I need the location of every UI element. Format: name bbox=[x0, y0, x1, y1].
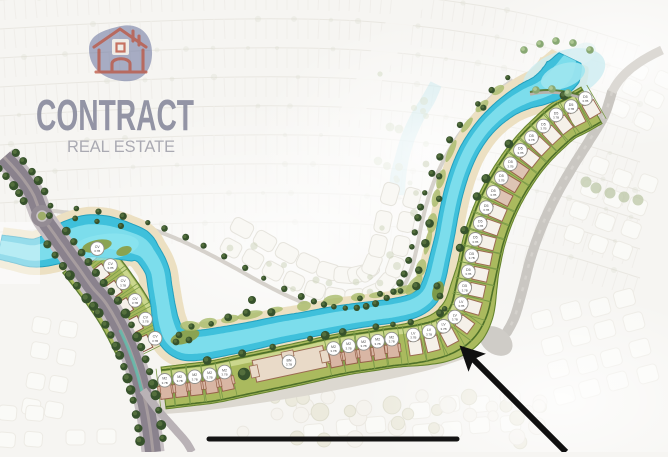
svg-text:3.7B: 3.7B bbox=[452, 318, 458, 322]
svg-text:3.7B: 3.7B bbox=[462, 288, 468, 292]
svg-text:3.7B: 3.7B bbox=[120, 283, 126, 287]
svg-text:3.7B: 3.7B bbox=[142, 320, 148, 324]
svg-text:3.7B: 3.7B bbox=[490, 193, 496, 197]
svg-text:3.7B: 3.7B bbox=[517, 151, 523, 155]
svg-text:3.7B: 3.7B bbox=[528, 138, 534, 142]
svg-text:3.7B: 3.7B bbox=[507, 164, 513, 168]
svg-text:3.7B: 3.7B bbox=[286, 363, 292, 367]
svg-text:3.7B: 3.7B bbox=[207, 375, 213, 379]
svg-text:3.7B: 3.7B bbox=[458, 304, 464, 308]
svg-text:3.7B: 3.7B bbox=[553, 116, 559, 120]
svg-text:3.7B: 3.7B bbox=[540, 127, 546, 131]
svg-text:3.7B: 3.7B bbox=[192, 377, 198, 381]
svg-text:3.7B: 3.7B bbox=[465, 272, 471, 276]
svg-text:3.7B: 3.7B bbox=[568, 107, 574, 111]
svg-text:3.7B: 3.7B bbox=[477, 224, 483, 228]
svg-text:3.7B: 3.7B bbox=[221, 373, 227, 377]
svg-text:3.7B: 3.7B bbox=[132, 301, 138, 305]
svg-text:3.7B: 3.7B bbox=[469, 256, 475, 260]
svg-text:3.7B: 3.7B bbox=[375, 342, 381, 346]
svg-text:3.7B: 3.7B bbox=[582, 99, 588, 103]
svg-text:3.7B: 3.7B bbox=[107, 266, 113, 270]
svg-text:3.7B: 3.7B bbox=[94, 249, 100, 253]
svg-text:CONTRACT: CONTRACT bbox=[36, 91, 194, 140]
svg-text:REAL ESTATE: REAL ESTATE bbox=[67, 138, 175, 156]
svg-text:3.7B: 3.7B bbox=[441, 327, 447, 331]
svg-text:3.7B: 3.7B bbox=[361, 344, 367, 348]
svg-text:3.7B: 3.7B bbox=[330, 349, 336, 353]
svg-text:3.7B: 3.7B bbox=[426, 332, 432, 336]
svg-text:3.7B: 3.7B bbox=[483, 208, 489, 212]
svg-text:3.7B: 3.7B bbox=[162, 381, 168, 385]
svg-text:3.7B: 3.7B bbox=[498, 178, 504, 182]
svg-text:3.7B: 3.7B bbox=[177, 379, 183, 383]
svg-text:3.7B: 3.7B bbox=[472, 240, 478, 244]
svg-text:3.7B: 3.7B bbox=[346, 346, 352, 350]
svg-text:3.7B: 3.7B bbox=[152, 339, 158, 343]
svg-text:3.7B: 3.7B bbox=[410, 336, 416, 340]
svg-text:3.7B: 3.7B bbox=[389, 340, 395, 344]
